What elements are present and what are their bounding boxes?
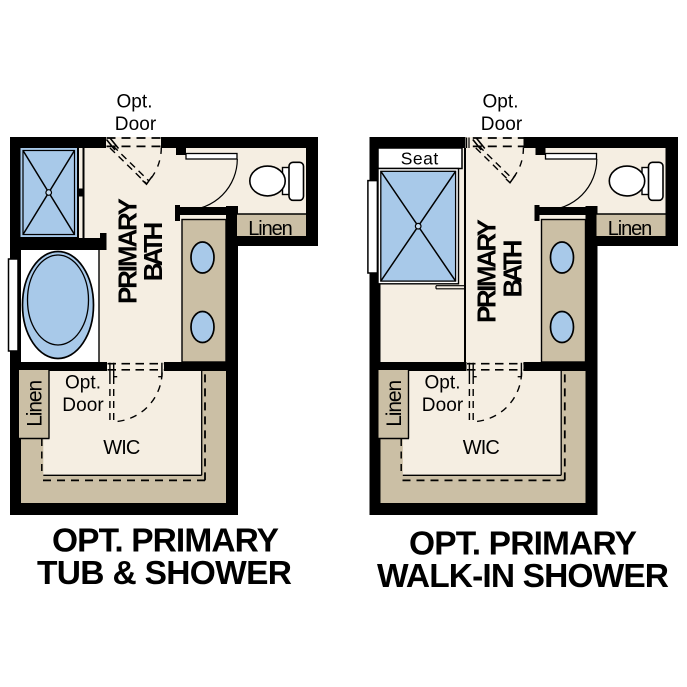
svg-text:Door: Door bbox=[62, 395, 104, 416]
svg-text:Opt.: Opt. bbox=[483, 92, 519, 113]
svg-text:Linen: Linen bbox=[248, 218, 293, 240]
svg-text:Door: Door bbox=[115, 114, 157, 135]
svg-text:OPT. PRIMARY: OPT. PRIMARY bbox=[52, 523, 279, 560]
svg-text:BATH: BATH bbox=[498, 240, 528, 298]
svg-text:Opt.: Opt. bbox=[65, 372, 101, 393]
svg-text:WIC: WIC bbox=[463, 437, 500, 459]
svg-text:WALK-IN SHOWER: WALK-IN SHOWER bbox=[377, 558, 669, 595]
svg-text:Opt.: Opt. bbox=[117, 92, 153, 113]
svg-text:Door: Door bbox=[481, 114, 523, 135]
svg-text:Linen: Linen bbox=[383, 380, 406, 427]
svg-text:Door: Door bbox=[422, 395, 464, 416]
svg-text:Linen: Linen bbox=[608, 218, 653, 240]
svg-text:Seat: Seat bbox=[401, 149, 439, 169]
svg-text:WIC: WIC bbox=[103, 437, 140, 459]
svg-text:Linen: Linen bbox=[24, 380, 47, 427]
svg-text:BATH: BATH bbox=[138, 222, 168, 282]
svg-text:TUB & SHOWER: TUB & SHOWER bbox=[37, 555, 292, 592]
svg-text:OPT. PRIMARY: OPT. PRIMARY bbox=[409, 526, 637, 563]
svg-text:Opt.: Opt. bbox=[425, 372, 461, 393]
